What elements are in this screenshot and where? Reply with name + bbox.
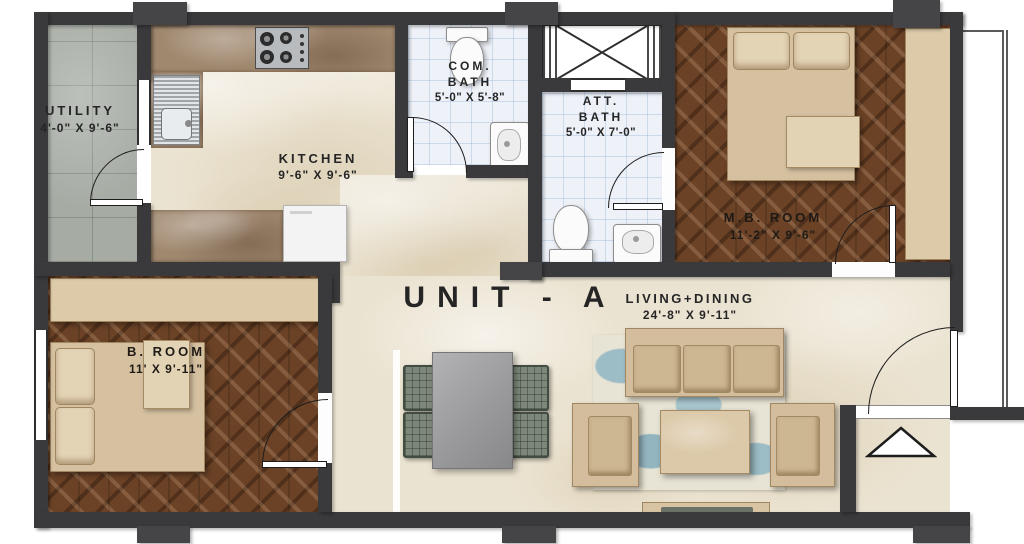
floorplan-unit-a: UTILITY 4'-0" X 9'-6" KITCHEN 9'-6" X 9'…	[0, 0, 1024, 544]
shaft-hatch-left	[543, 26, 557, 79]
wall-column	[505, 2, 558, 25]
att-bath-label: BATH	[579, 111, 623, 124]
com-bath-label: COM.	[448, 60, 491, 73]
shaft-cross-icon	[557, 26, 647, 79]
wall-mid-left	[34, 262, 340, 276]
utility-dims: 4'-0" X 9'-6"	[40, 122, 119, 135]
com-bath-label: BATH	[448, 76, 492, 89]
living-dining-dims: 24'-8" X 9'-11"	[643, 309, 737, 322]
armchair-cushion	[776, 416, 820, 476]
wall-mb-left	[662, 12, 675, 265]
dining-table	[432, 352, 513, 469]
sofa-cushion	[733, 345, 780, 393]
wall-right	[950, 12, 963, 332]
gas-stove-icon	[255, 27, 309, 69]
att-bath-label: ATT.	[583, 95, 619, 108]
utility-service-window	[137, 80, 151, 145]
wall-column	[893, 0, 940, 28]
wall-bath-divider	[528, 25, 542, 280]
unit-title: UNIT - A	[403, 281, 616, 314]
mb-bed-blanket	[786, 116, 860, 168]
entrance-door	[950, 330, 958, 407]
kitchen-dims: 9'-6" X 9'-6"	[278, 169, 357, 182]
sofa-cushion	[633, 345, 681, 393]
wall-column	[502, 526, 556, 543]
kitchen-counter-bottom	[151, 210, 283, 262]
floor-light-strip	[393, 350, 400, 512]
com-bath-door	[407, 117, 414, 172]
sofa-cushion	[683, 345, 731, 393]
wall-column	[913, 526, 970, 543]
kitchen-sink-icon	[153, 75, 200, 145]
kitchen-label: KITCHEN	[279, 152, 358, 166]
exterior-boundary-line	[1002, 30, 1008, 410]
utility-label: UTILITY	[45, 104, 115, 118]
com-bath-dims: 5'-0" X 5'-8"	[435, 92, 505, 105]
att-bath-washbasin-icon	[613, 224, 661, 264]
b-room-bed-pillow	[55, 407, 95, 465]
duct-shaft	[542, 25, 662, 80]
wall-column	[137, 526, 190, 543]
coffee-table	[660, 410, 750, 474]
b-room-dims: 11' X 9'-11"	[129, 363, 203, 376]
wall-utility-partition	[137, 25, 151, 80]
att-bath-toilet-icon	[553, 205, 589, 253]
mb-room-label: M.B. ROOM	[724, 211, 823, 225]
shaft-hatch-right	[647, 26, 661, 79]
mb-room-dims: 11'-2" X 9'-6"	[730, 229, 816, 242]
wall-utility-partition	[137, 203, 151, 262]
mb-door	[889, 205, 896, 263]
armchair-cushion	[588, 416, 632, 476]
att-bath-door	[613, 203, 663, 210]
entry-arrow-icon	[865, 425, 937, 459]
b-room-label: B. ROOM	[127, 345, 205, 359]
b-room-bed-pillow	[55, 348, 95, 405]
wall-column	[500, 262, 542, 280]
b-room-door	[262, 461, 327, 468]
mb-bed-pillow	[793, 32, 850, 70]
wall-foyer-left	[840, 405, 856, 512]
wall-column	[133, 2, 187, 25]
wall-foyer-exterior	[963, 407, 1024, 420]
att-bath-ventilator	[571, 78, 625, 92]
b-room-wardrobe	[50, 278, 320, 322]
utility-door	[90, 199, 143, 206]
att-bath-dims: 5'-0" X 7'-0"	[566, 127, 636, 140]
wall-com-bath-bottom	[466, 165, 528, 178]
mb-wardrobe	[905, 28, 952, 260]
living-dining-label: LIVING+DINING	[626, 292, 755, 306]
mb-door-opening	[832, 262, 895, 277]
mb-bed-pillow	[733, 32, 790, 70]
refrigerator-icon	[283, 205, 347, 262]
utility-floor	[44, 25, 137, 262]
com-bath-washbasin-icon	[490, 122, 530, 168]
b-room-window	[34, 330, 48, 440]
